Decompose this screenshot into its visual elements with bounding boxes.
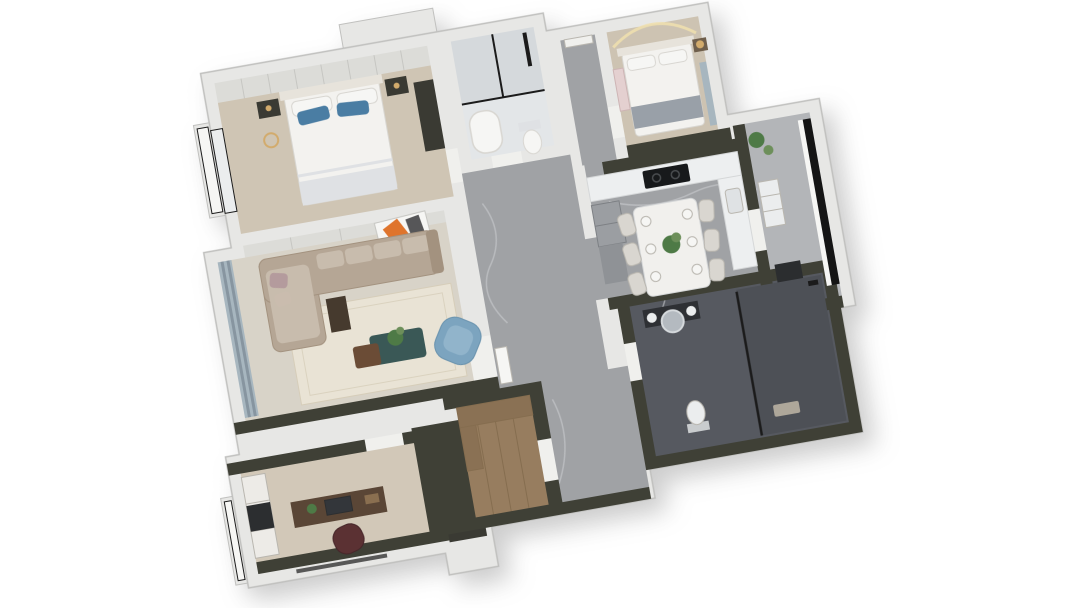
apartment-plan-group xyxy=(143,0,889,608)
sofa-pillow-mauve xyxy=(269,273,288,289)
dining-chair xyxy=(709,259,725,282)
bookshelf-tv-panel xyxy=(246,502,274,532)
floor-plan-render-viewport xyxy=(0,0,1080,608)
dining-chair xyxy=(704,229,720,252)
floor-plan-canvas xyxy=(0,0,1080,608)
dining-chair xyxy=(699,199,715,222)
coffee-table-wood xyxy=(352,343,381,369)
